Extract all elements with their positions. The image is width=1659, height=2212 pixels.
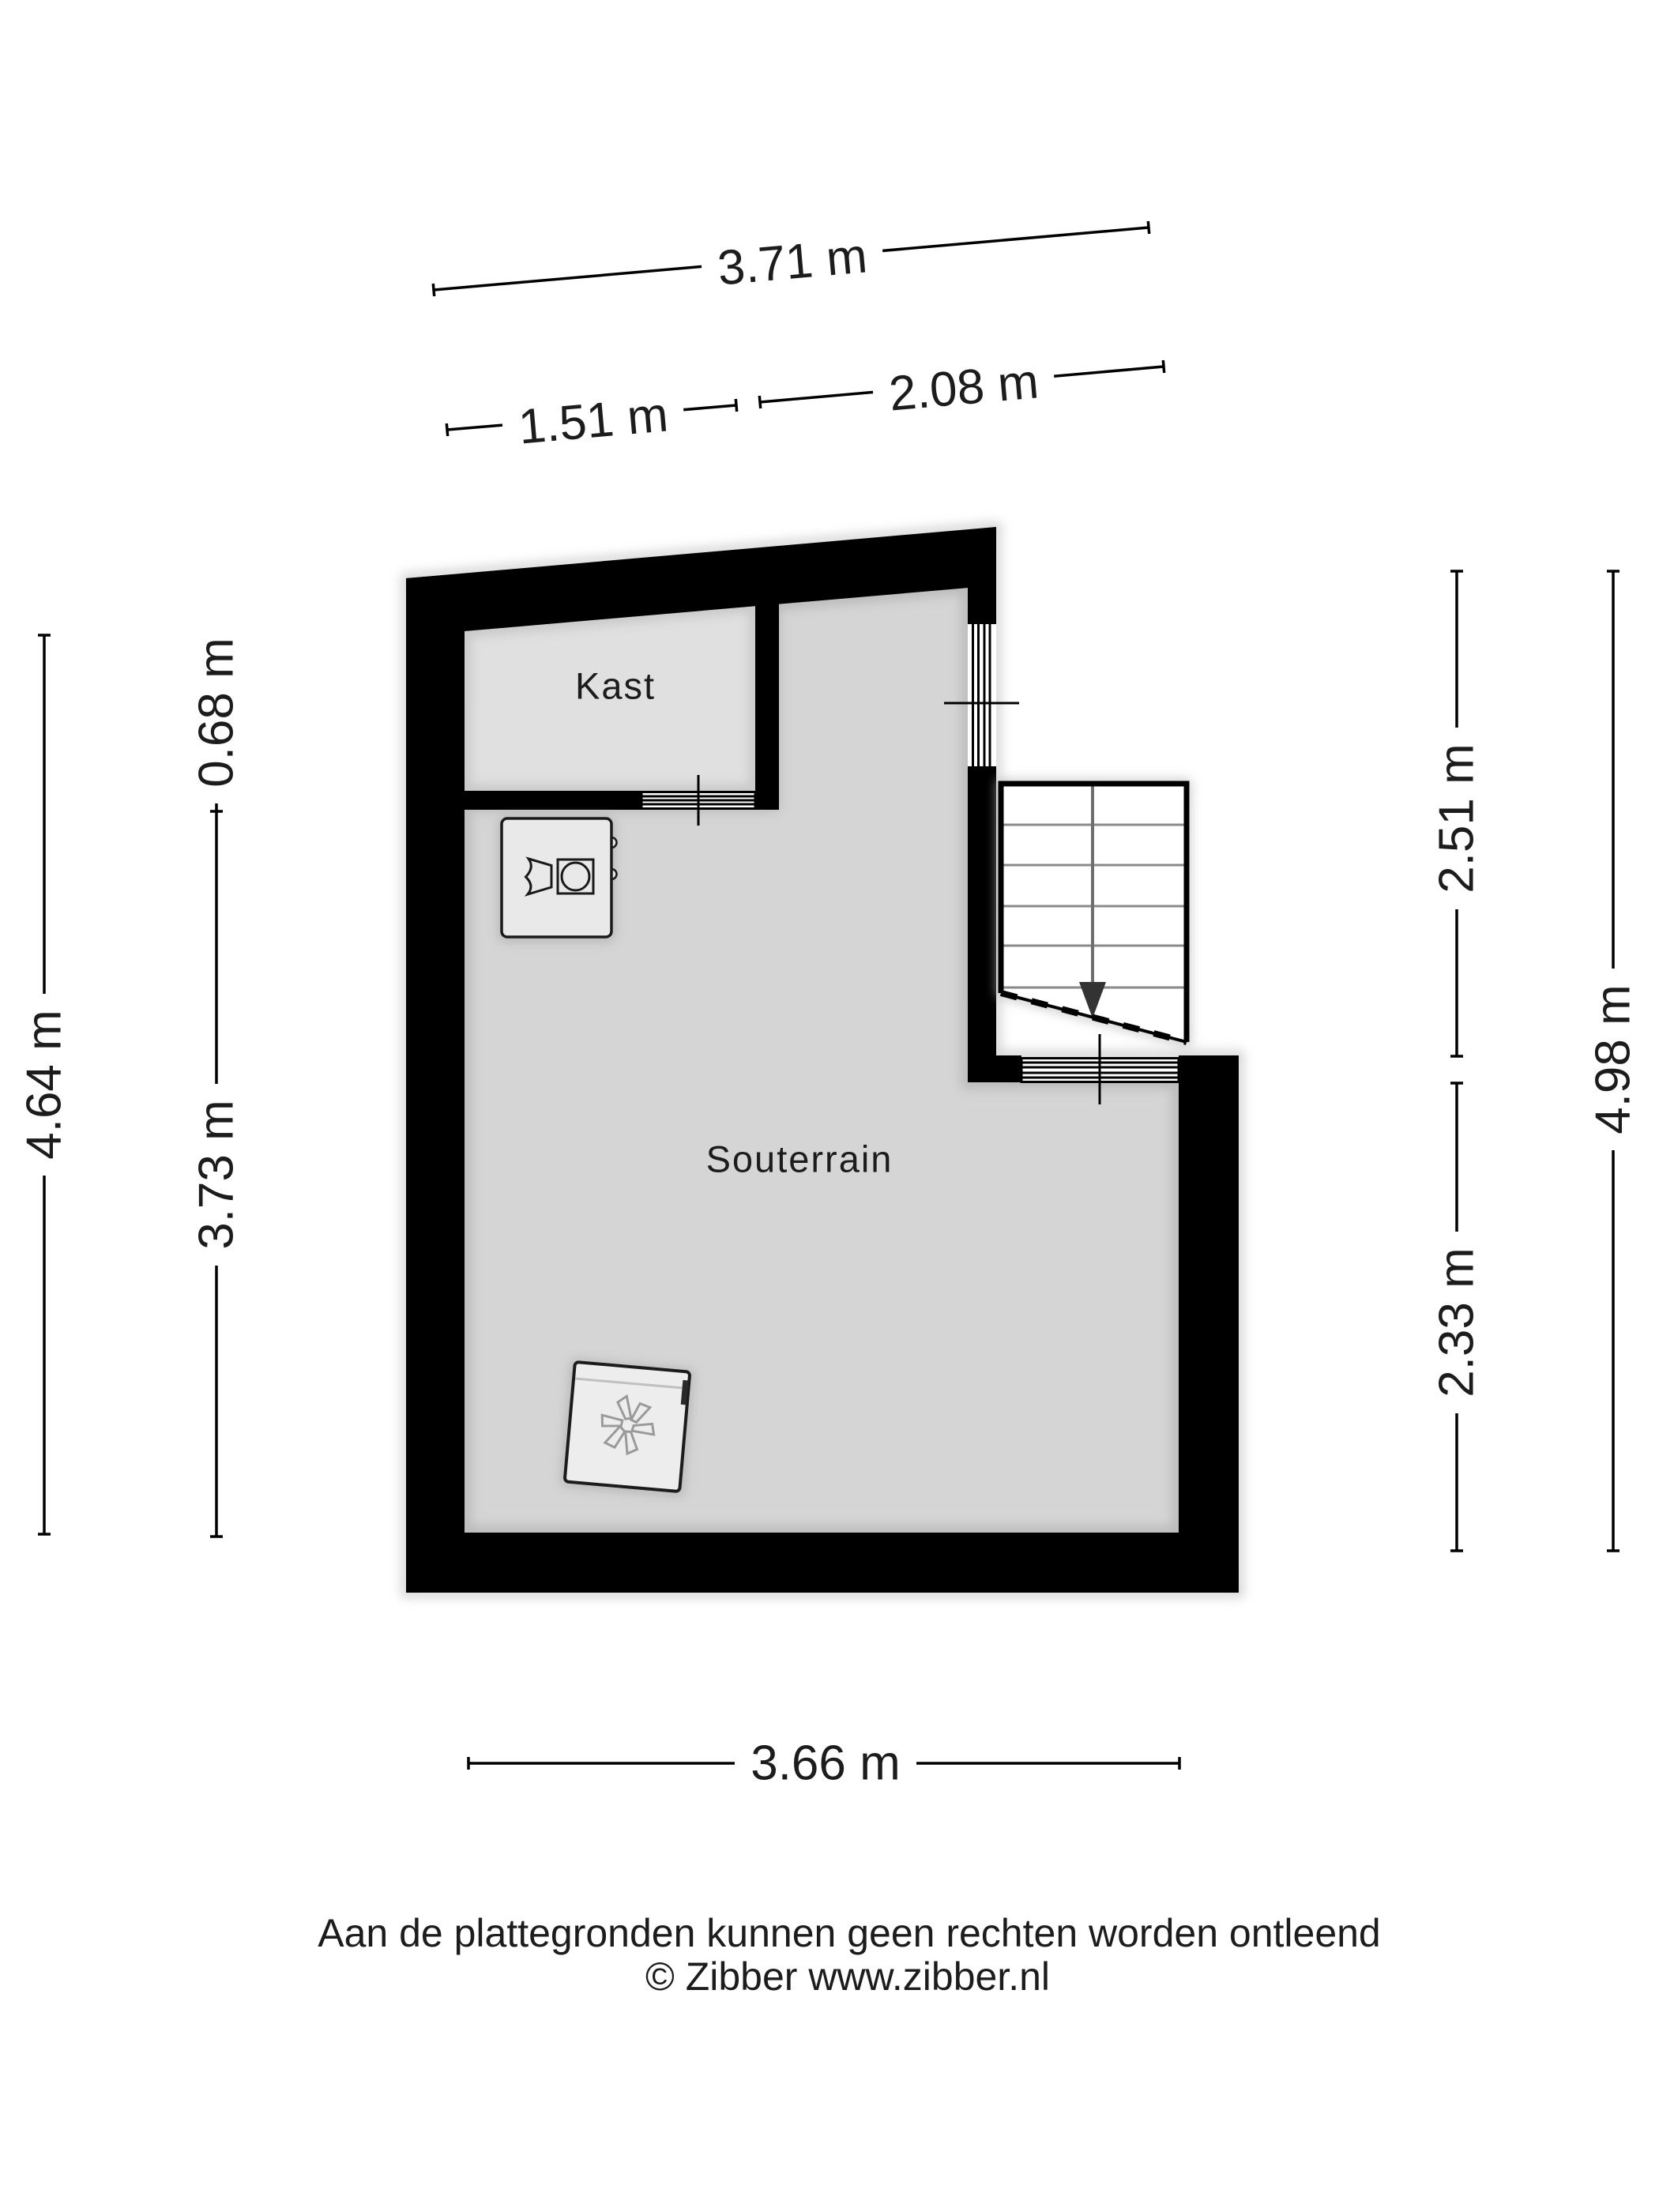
- svg-text:4.98 m: 4.98 m: [1586, 984, 1641, 1134]
- svg-text:3.66 m: 3.66 m: [750, 1736, 901, 1791]
- svg-text:Souterrain: Souterrain: [706, 1138, 893, 1180]
- svg-text:0.68 m: 0.68 m: [190, 638, 244, 788]
- svg-text:2.33 m: 2.33 m: [1430, 1247, 1484, 1398]
- svg-text:2.51 m: 2.51 m: [1430, 743, 1484, 893]
- svg-text:Aan de plattegronden kunnen ge: Aan de plattegronden kunnen geen rechten…: [318, 1911, 1381, 1955]
- svg-text:Kast: Kast: [575, 665, 656, 707]
- svg-text:4.64 m: 4.64 m: [17, 1010, 72, 1160]
- svg-text:3.73 m: 3.73 m: [190, 1100, 244, 1250]
- svg-text:© Zibber www.zibber.nl: © Zibber www.zibber.nl: [645, 1954, 1050, 1999]
